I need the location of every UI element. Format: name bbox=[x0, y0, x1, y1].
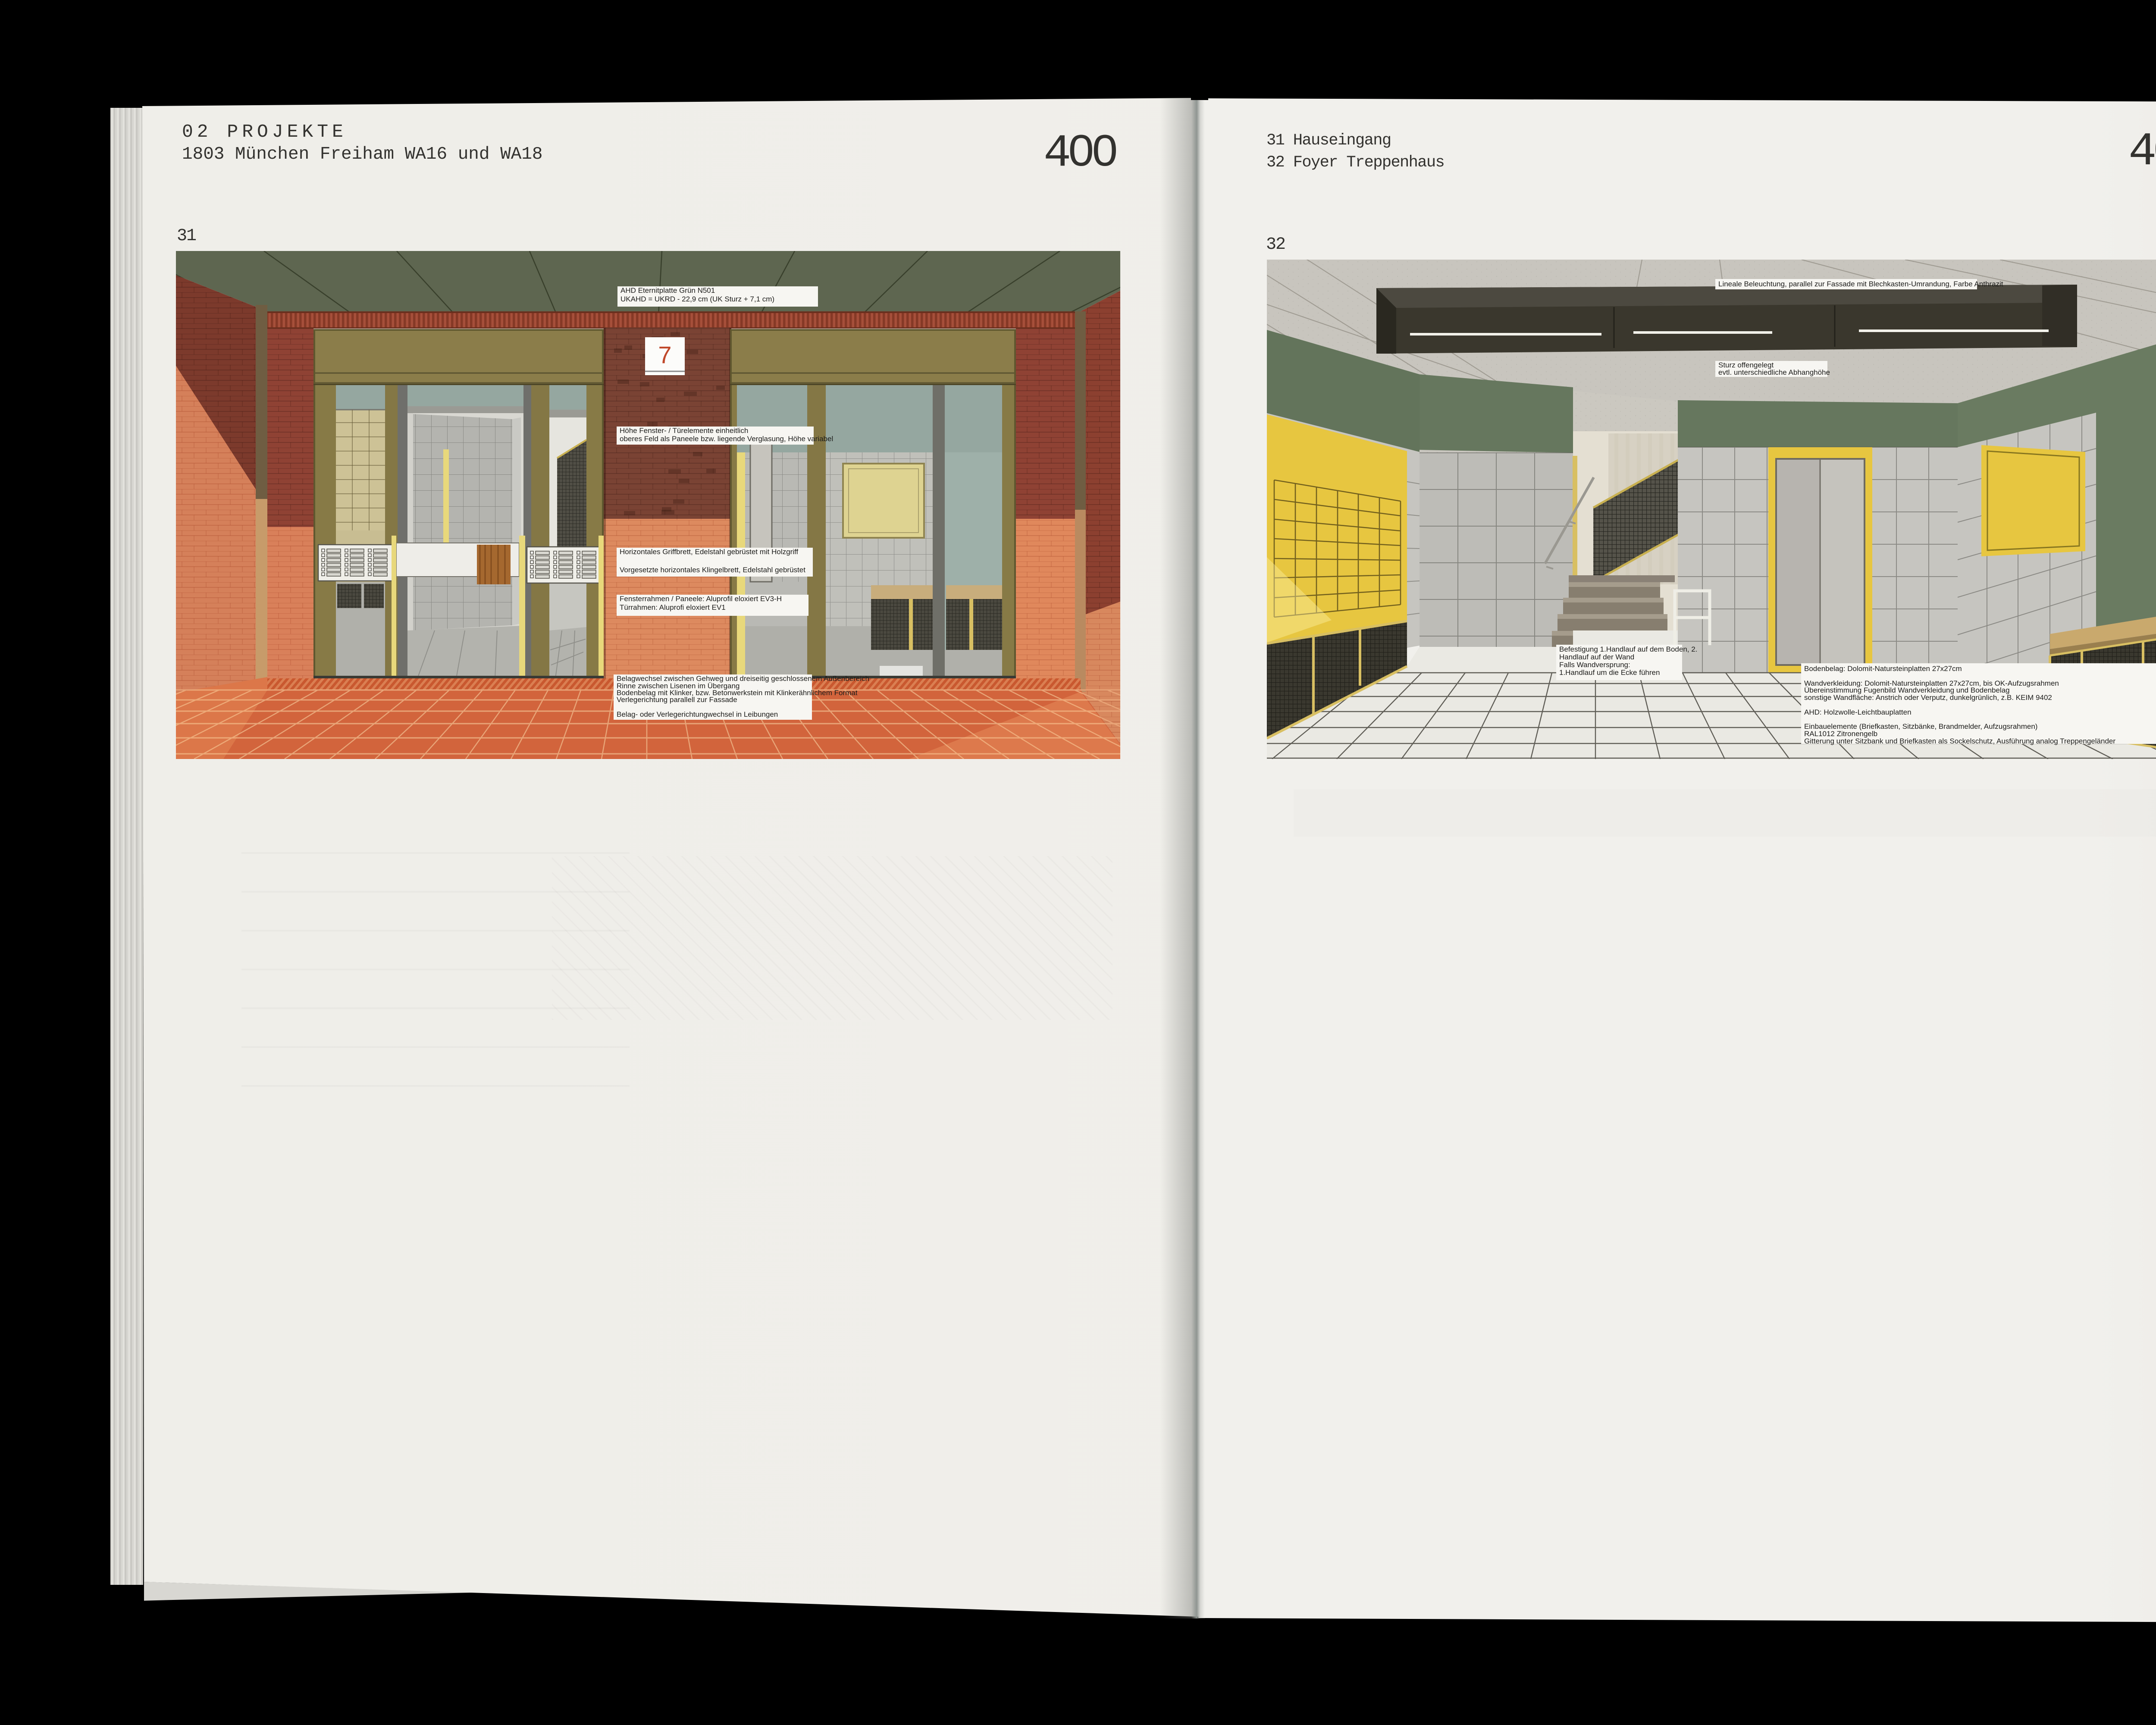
svg-text:Horizontales Griffbrett, Edels: Horizontales Griffbrett, Edelstahl gebrü… bbox=[620, 548, 798, 556]
svg-text:Höhe Fenster- / Türelemente ei: Höhe Fenster- / Türelemente einheitlich bbox=[620, 427, 748, 435]
svg-text:Vorgesetzte horizontales Kling: Vorgesetzte horizontales Klingelbrett, E… bbox=[620, 566, 805, 574]
svg-text:Lineale Beleuchtung, parallel: Lineale Beleuchtung, parallel zur Fassad… bbox=[1718, 280, 2003, 288]
svg-text:Befestigung 1.Handlauf auf dem: Befestigung 1.Handlauf auf dem Boden, 2. bbox=[1559, 645, 1697, 653]
svg-text:UKAHD = UKRD - 22,9 cm (UK Stu: UKAHD = UKRD - 22,9 cm (UK Sturz + 7,1 c… bbox=[620, 295, 774, 303]
svg-text:sonstige Wandfläche: Anstrich: sonstige Wandfläche: Anstrich oder Verpu… bbox=[1804, 693, 2052, 702]
svg-text:Verlegerichtung parallell zur: Verlegerichtung parallell zur Fassade bbox=[617, 696, 737, 704]
svg-text:7: 7 bbox=[658, 341, 671, 368]
svg-text:Handlauf auf der Wand: Handlauf auf der Wand bbox=[1559, 653, 1634, 661]
svg-text:evtl. unterschiedliche Abhangh: evtl. unterschiedliche Abhanghöhe bbox=[1718, 368, 1830, 376]
svg-text:Bodenbelag: Dolomit-Naturstein: Bodenbelag: Dolomit-Natursteinplatten 27… bbox=[1804, 665, 1962, 673]
svg-text:Gitterung unter Sitzbank und B: Gitterung unter Sitzbank und Briefkasten… bbox=[1804, 737, 2115, 745]
svg-text:AHD Eternitplatte Grün N501: AHD Eternitplatte Grün N501 bbox=[620, 286, 715, 295]
svg-text:oberes Feld als Paneele bzw. l: oberes Feld als Paneele bzw. liegende Ve… bbox=[620, 435, 833, 443]
svg-text:1.Handlauf um die Ecke führen: 1.Handlauf um die Ecke führen bbox=[1559, 668, 1660, 677]
svg-text:AHD: Holzwolle-Leichtbauplatte: AHD: Holzwolle-Leichtbauplatten bbox=[1804, 708, 1912, 716]
svg-text:Belag- oder Verlegerichtungwec: Belag- oder Verlegerichtungwechsel in Le… bbox=[617, 710, 778, 718]
svg-text:Fensterrahmen / Paneele: Alupr: Fensterrahmen / Paneele: Aluprofil eloxi… bbox=[620, 595, 782, 603]
svg-text:Falls Wandversprung:: Falls Wandversprung: bbox=[1559, 661, 1630, 669]
svg-text:Türrahmen: Aluprofi eloxiert E: Türrahmen: Aluprofi eloxiert EV1 bbox=[620, 603, 726, 612]
